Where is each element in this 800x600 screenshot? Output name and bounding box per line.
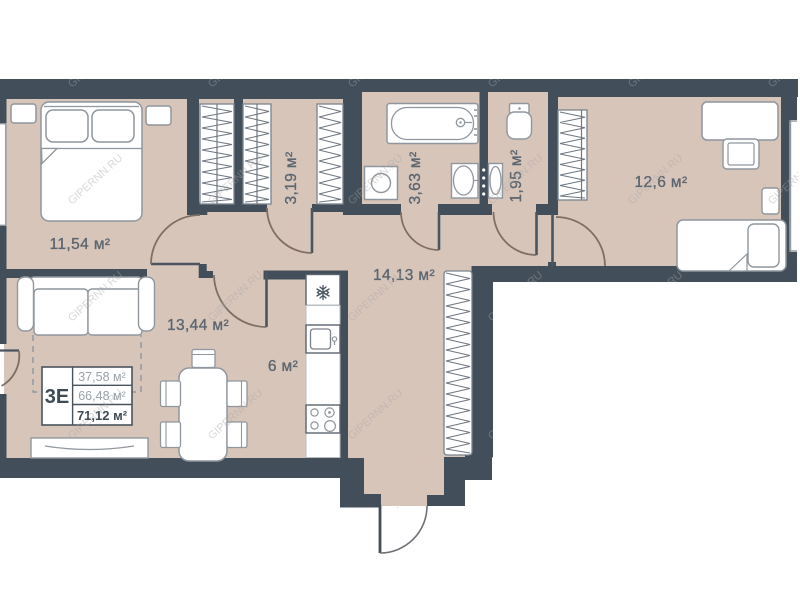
svg-text:13,44 м²: 13,44 м² xyxy=(167,317,229,334)
svg-text:3,19 м²: 3,19 м² xyxy=(283,151,300,204)
svg-text:3,63 м²: 3,63 м² xyxy=(407,151,424,204)
svg-text:3Е: 3Е xyxy=(45,386,69,408)
svg-text:37,58 м²: 37,58 м² xyxy=(78,370,126,384)
svg-text:11,54 м²: 11,54 м² xyxy=(50,236,111,253)
svg-text:6 м²: 6 м² xyxy=(268,358,298,375)
